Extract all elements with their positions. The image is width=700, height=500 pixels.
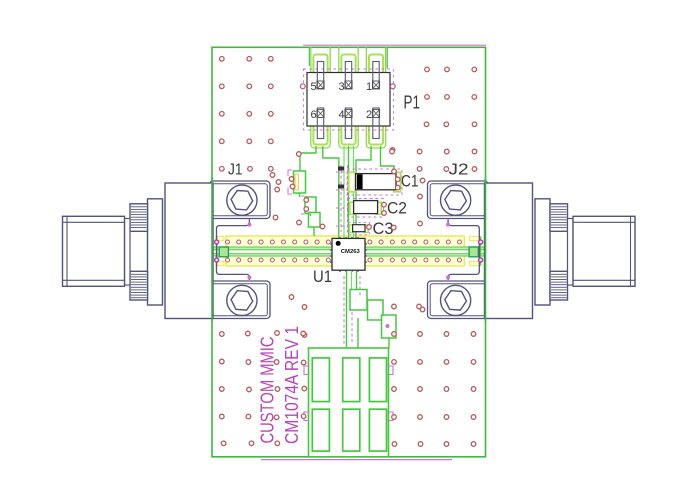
svg-text:C2: C2 [387, 199, 407, 218]
svg-text:5: 5 [310, 81, 316, 93]
svg-text:2: 2 [366, 109, 372, 121]
svg-text:C1: C1 [401, 172, 419, 191]
svg-text:1: 1 [366, 81, 372, 93]
svg-text:U1: U1 [313, 267, 332, 286]
svg-text:CM1074A REV 1: CM1074A REV 1 [282, 326, 302, 444]
svg-text:P1: P1 [404, 92, 421, 112]
svg-text:CM263: CM263 [341, 249, 360, 255]
svg-text:J2: J2 [449, 162, 469, 179]
svg-text:6: 6 [310, 109, 316, 121]
svg-text:3: 3 [338, 81, 344, 93]
svg-text:C3: C3 [373, 219, 394, 238]
svg-text:CUSTOM MMIC: CUSTOM MMIC [258, 337, 278, 444]
svg-text:4: 4 [338, 109, 344, 121]
svg-text:J1: J1 [228, 162, 243, 179]
